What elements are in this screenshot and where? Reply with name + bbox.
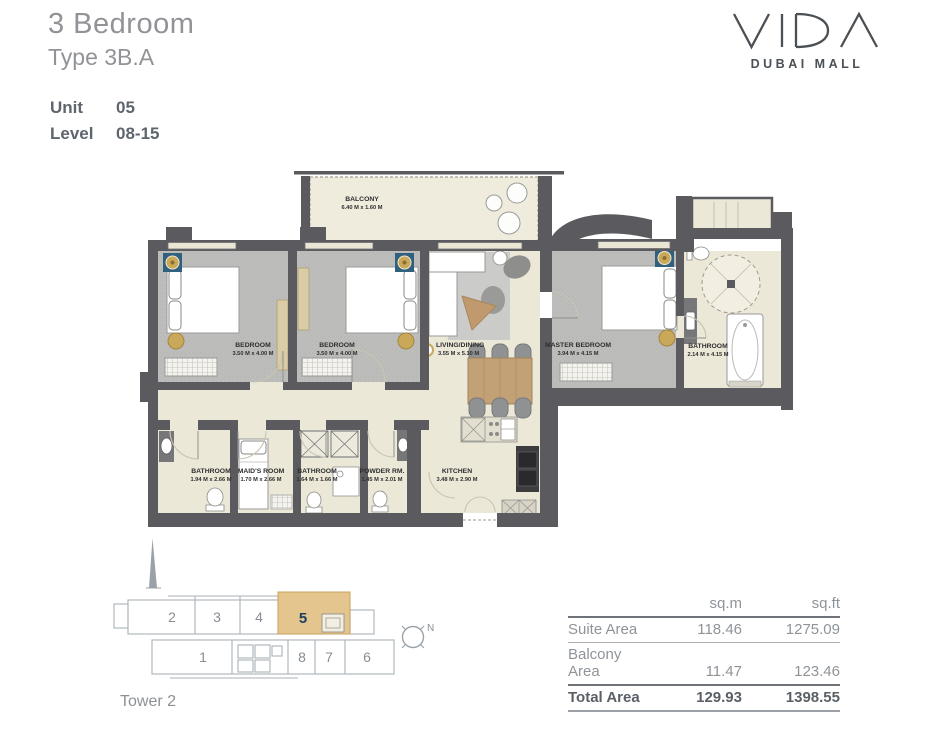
key-plan: 2 3 4 5 1 8 7 6 Tower 2 N	[114, 538, 434, 710]
bedroom1-dims: 3.50 M x 4.00 M	[232, 351, 273, 357]
row-label: Suite Area	[568, 621, 654, 638]
keyplan-unit-1: 1	[199, 649, 207, 665]
col-sqm: sq.m	[654, 595, 742, 612]
bath1-dims: 1.94 M x 2.66 M	[190, 477, 231, 483]
table-row-total: Total Area 129.93 1398.55	[568, 686, 840, 712]
row-label: Total Area	[568, 689, 654, 706]
master-label: MASTER BEDROOM	[545, 342, 611, 349]
keyplan-unit-3: 3	[213, 609, 221, 625]
keyplan-unit-2: 2	[168, 609, 176, 625]
keyplan-unit-4: 4	[255, 609, 263, 625]
bedroom2-label: BEDROOM	[319, 342, 355, 349]
keyplan-unit-5: 5	[299, 610, 307, 627]
balcony-table	[507, 183, 527, 203]
balcony-label: BALCONY	[345, 196, 379, 203]
table-row: Balcony Area 11.47 123.46	[568, 643, 840, 686]
keyplan-unit-8: 8	[298, 649, 306, 665]
row-sqft: 1398.55	[742, 689, 840, 706]
master-bath-dims: 2.14 M x 4.15 M	[687, 352, 728, 358]
balcony-table	[498, 212, 520, 234]
compass-icon: N	[402, 623, 434, 648]
bath2-label: BATHROOM	[297, 468, 337, 475]
side-table	[493, 251, 507, 265]
row-label: Balcony Area	[568, 646, 654, 680]
bedroom2-dims: 3.50 M x 4.00 M	[316, 351, 357, 357]
keyplan-unit-6: 6	[363, 649, 371, 665]
keyplan-unit-7: 7	[325, 649, 333, 665]
pouf	[398, 333, 414, 349]
row-sqm: 118.46	[654, 621, 742, 638]
bath1-label: BATHROOM	[191, 468, 231, 475]
kitchen-dims: 3.48 M x 2.90 M	[436, 477, 477, 483]
master-dims: 3.94 M x 4.15 M	[557, 351, 598, 357]
pouf	[168, 333, 184, 349]
balcony-rail	[294, 171, 564, 175]
wardrobe	[298, 268, 309, 330]
powder-label: POWDER RM.	[360, 468, 405, 475]
tower-label: Tower 2	[120, 693, 176, 710]
living-dims: 3.55 M x 5.10 M	[438, 351, 479, 357]
col-sqft: sq.ft	[742, 595, 840, 612]
bedroom1-label: BEDROOM	[235, 342, 271, 349]
area-table: sq.m sq.ft Suite Area 118.46 1275.09 Bal…	[568, 592, 840, 712]
master-bath-label: BATHROOM	[688, 343, 728, 350]
dresser	[165, 358, 217, 376]
row-sqft: 123.46	[742, 663, 840, 680]
spire-icon	[149, 538, 157, 588]
powder-dims: 1.45 M x 2.01 M	[361, 477, 402, 483]
balcony: BALCONY 6.40 M x 1.60 M	[294, 171, 564, 241]
maids-dims: 1.70 M x 2.66 M	[240, 477, 281, 483]
bath2-dims: 1.64 M x 1.66 M	[296, 477, 337, 483]
kitchen-label: KITCHEN	[442, 468, 472, 475]
area-table-header: sq.m sq.ft	[568, 592, 840, 618]
balcony-table	[486, 195, 502, 211]
compass-n: N	[427, 623, 434, 634]
row-sqft: 1275.09	[742, 621, 840, 638]
living-label: LIVING/DINING	[436, 342, 484, 349]
dresser	[302, 358, 352, 376]
maids-label: MAID'S ROOM	[238, 468, 285, 475]
row-sqm: 129.93	[654, 689, 742, 706]
balcony-dims: 6.40 M x 1.60 M	[341, 205, 382, 211]
row-sqm: 11.47	[654, 663, 742, 680]
table-row: Suite Area 118.46 1275.09	[568, 618, 840, 643]
